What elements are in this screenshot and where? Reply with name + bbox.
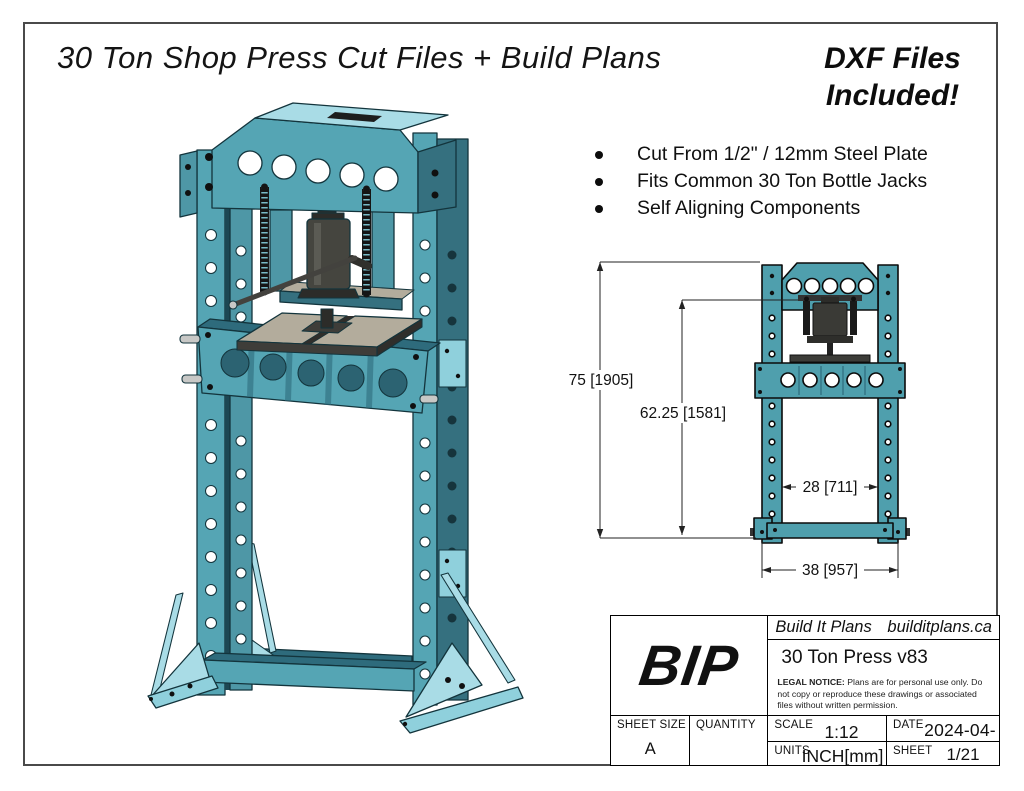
dim-working-height: 62.25 [1581] (640, 405, 726, 422)
bullet-dot-icon (595, 151, 603, 159)
dim-overall-width: 38 [957] (802, 562, 858, 579)
dxf-promo-line2: Included! (800, 77, 985, 114)
date-cell: DATE 2024-04-09 (886, 715, 1000, 743)
title-block-name-cell: 30 Ton Press v83 LEGAL NOTICE: Plans are… (767, 639, 1000, 717)
legal-notice-label: LEGAL NOTICE: (777, 677, 844, 687)
title-block-logo-cell: BIP (610, 615, 769, 717)
dim-inside-width: 28 [711] (803, 479, 858, 496)
bullet-text: Fits Common 30 Ton Bottle Jacks (637, 170, 927, 193)
feature-bullet-list: Cut From 1/2" / 12mm Steel Plate Fits Co… (585, 141, 1010, 222)
dxf-promo-line1: DXF Files (800, 40, 985, 77)
right-column (413, 133, 468, 705)
quantity-cell: QUANTITY (689, 715, 769, 766)
sheet-number-value: 1/21 (887, 745, 999, 765)
dim-overall-height: 75 [1905] (569, 372, 634, 389)
sheet-size-cell: SHEET SIZE A (610, 715, 691, 766)
bip-logo: BIP (636, 633, 743, 699)
base-rear (241, 542, 412, 670)
legal-notice: LEGAL NOTICE: Plans are for personal use… (777, 677, 994, 711)
sheet-number-cell: SHEET 1/21 (886, 741, 1000, 766)
dxf-promo: DXF Files Included! (800, 40, 985, 114)
sheet-size-label: SHEET SIZE (617, 719, 686, 731)
sheet-size-value: A (611, 740, 690, 759)
bullet-dot-icon (595, 178, 603, 186)
brand-website: builditplans.ca (887, 618, 992, 637)
title-block-brand-cell: Build It Plans builditplans.ca (767, 615, 1000, 641)
press-3d-render (130, 95, 550, 765)
page-title: 30 Ton Shop Press Cut Files + Build Plan… (57, 40, 661, 76)
bullet-dot-icon (595, 205, 603, 213)
units-value: INCH[mm] (768, 746, 886, 767)
front-view-drawing: 75 [1905] 62.25 [1581] 28 [711] 38 [957] (560, 248, 1020, 593)
bullet-text: Cut From 1/2" / 12mm Steel Plate (637, 143, 928, 166)
scale-value: 1:12 (768, 722, 886, 743)
left-column (197, 150, 252, 695)
brand-name: Build It Plans (775, 618, 871, 637)
quantity-label: QUANTITY (696, 719, 756, 731)
crown-assembly (180, 103, 456, 217)
scale-cell: SCALE 1:12 (767, 715, 887, 743)
drawing-sheet: 30 Ton Shop Press Cut Files + Build Plan… (0, 0, 1024, 791)
front-press (750, 263, 910, 543)
units-cell: UNITS INCH[mm] (767, 741, 887, 766)
feature-bullet: Fits Common 30 Ton Bottle Jacks (585, 168, 1010, 195)
drawing-name: 30 Ton Press v83 (781, 647, 999, 669)
title-block: BIP Build It Plans builditplans.ca 30 To… (610, 615, 1000, 766)
feature-bullet: Self Aligning Components (585, 195, 1010, 222)
bullet-text: Self Aligning Components (637, 197, 860, 220)
feature-bullet: Cut From 1/2" / 12mm Steel Plate (585, 141, 1010, 168)
